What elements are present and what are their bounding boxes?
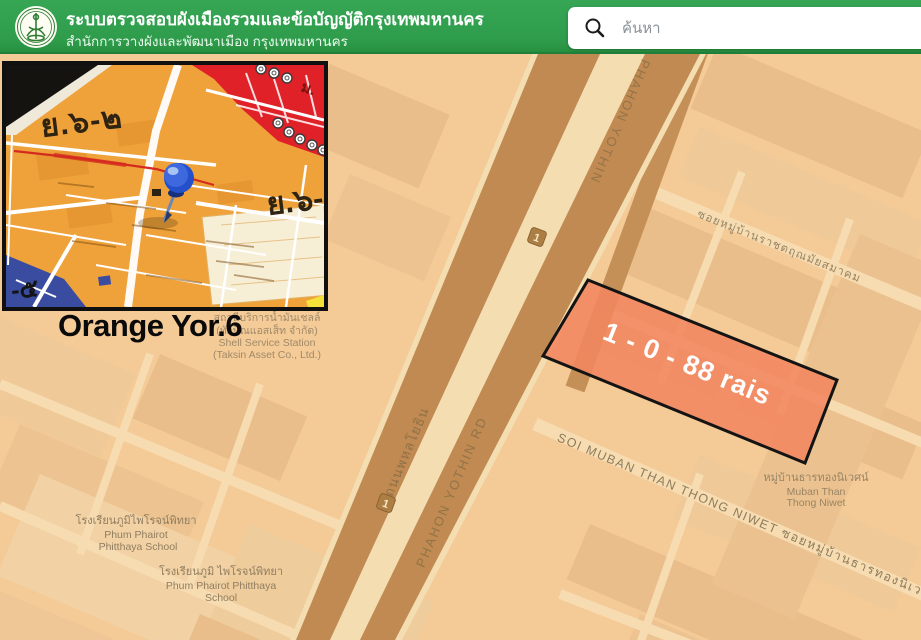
app-header: ระบบตรวจสอบผังเมืองรวมและข้อบัญญัติกรุงเ…	[0, 0, 921, 54]
search-input[interactable]	[620, 19, 864, 38]
app-title: ระบบตรวจสอบผังเมืองรวมและข้อบัญญัติกรุงเ…	[66, 6, 484, 33]
inset-blue-block	[98, 275, 111, 286]
inset-zone-label-blue: -๕	[10, 274, 40, 305]
app-subtitle: สำนักการวางผังและพัฒนาเมือง กรุงเทพมหานค…	[66, 30, 348, 52]
school1-label-en1: Phum Phairot	[104, 529, 168, 541]
inset-poi-block	[152, 189, 161, 196]
muban-label-en2: Thong Niwet	[787, 497, 846, 509]
app-screen: 1 - 0 - 88 rais 1 1 PHAHON YOTHIN ถนนพหล…	[0, 0, 921, 640]
muban-label-thai: หมู่บ้านธารทองนิเวศน์	[763, 471, 869, 484]
shell-label-en2: (Taksin Asset Co., Ltd.)	[213, 349, 321, 361]
bma-seal-icon	[14, 5, 58, 49]
school1-label-thai: โรงเรียนภูมิไพโรจน์พิทยา	[75, 513, 196, 527]
school2-label-en2: School	[205, 592, 237, 604]
inset-zone-label-right: ย.๖-	[265, 180, 324, 222]
search-box[interactable]	[568, 7, 921, 49]
zone-caption: Orange Yor.6	[58, 308, 242, 344]
school2-label-en1: Phum Phairot Phitthaya	[166, 580, 276, 592]
zoning-inset-map: ม. ย.๖-๒ ย.๖- -๕	[2, 61, 328, 311]
school1-label-en2: Phitthaya School	[99, 541, 178, 553]
school2-label-thai: โรงเรียนภูมิ ไพโรจน์พิทยา	[159, 564, 283, 578]
search-icon[interactable]	[584, 17, 606, 39]
